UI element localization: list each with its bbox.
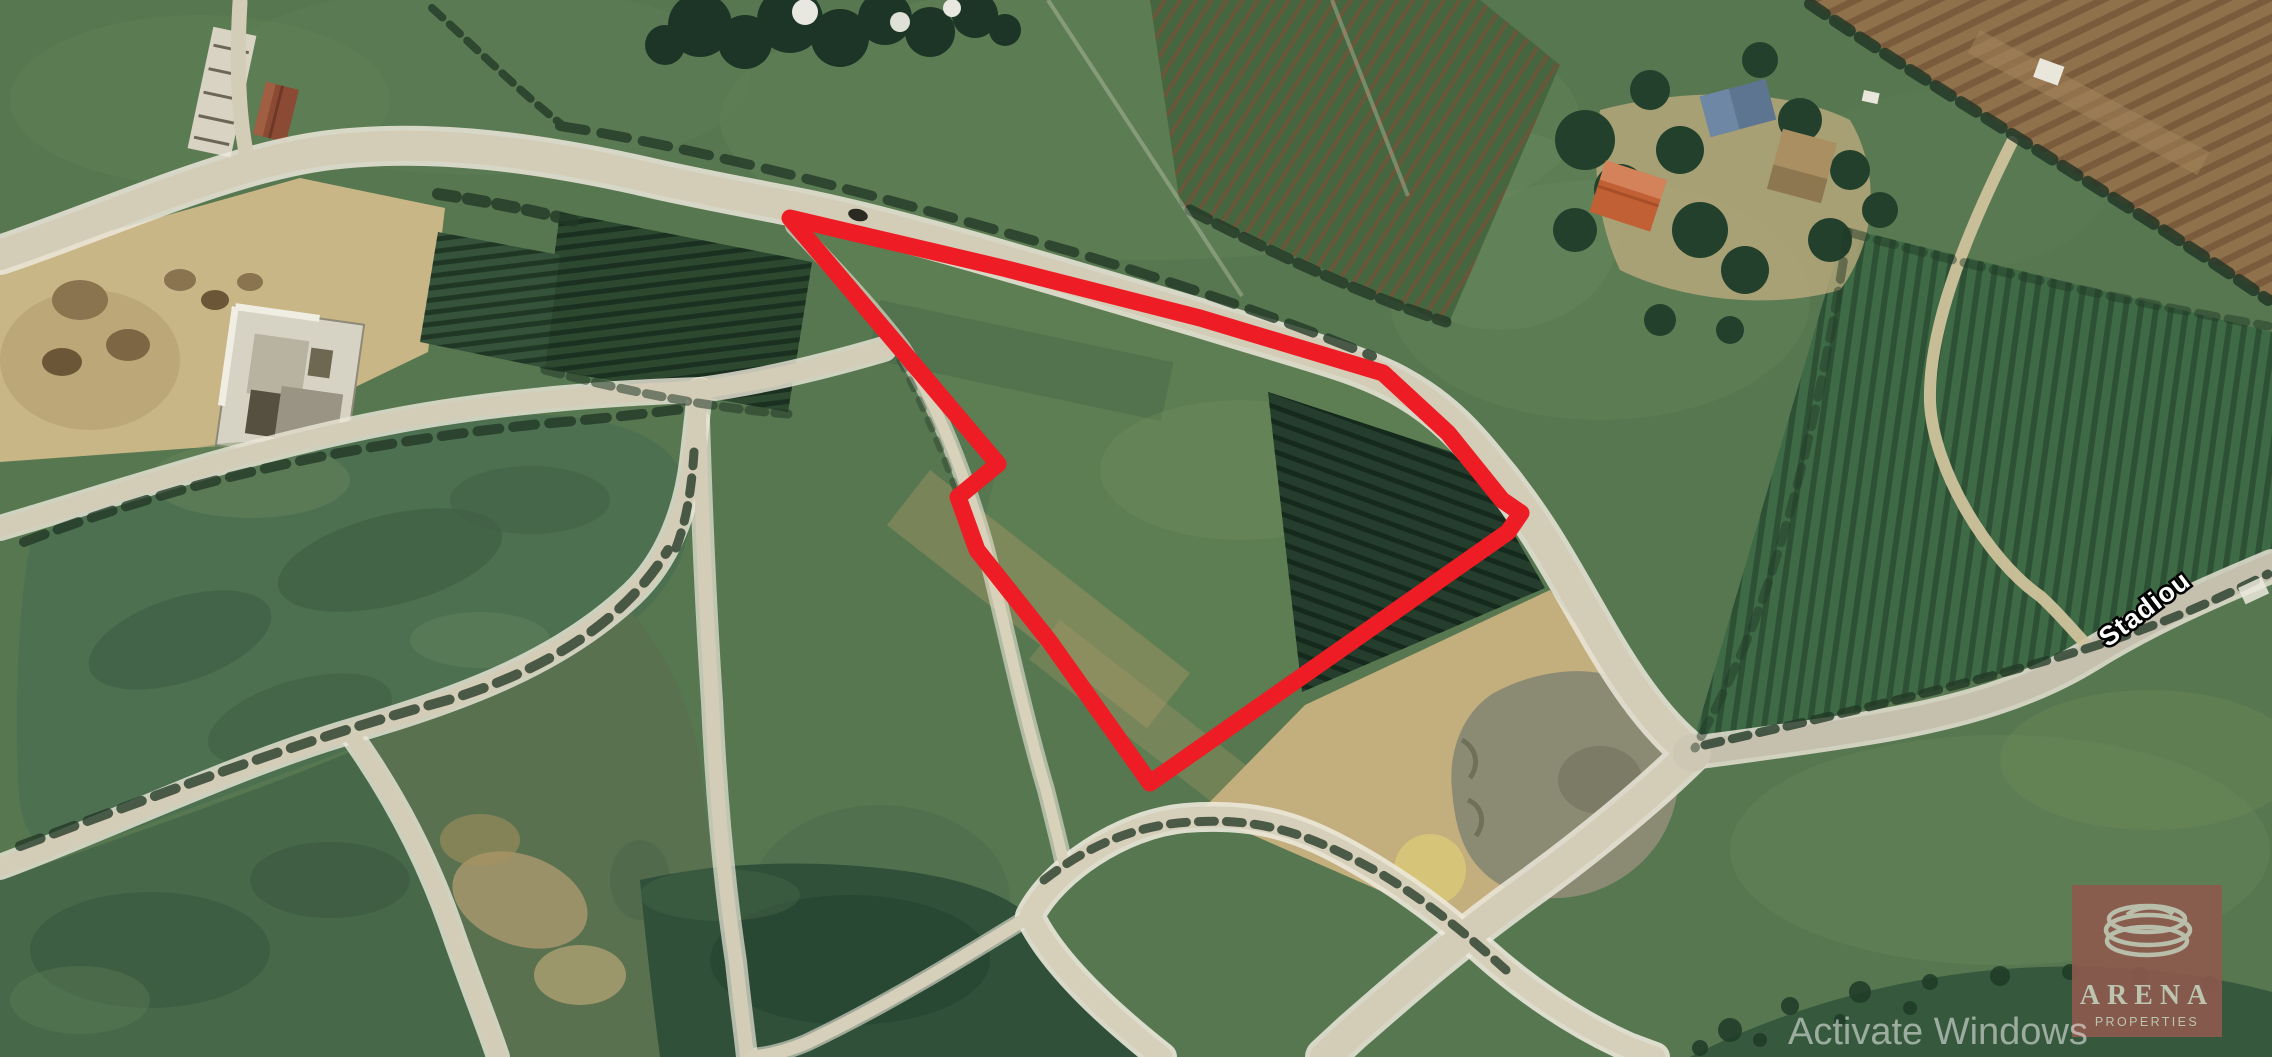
logo-title: ARENA [2080,980,2215,1011]
agency-logo: ARENA PROPERTIES [2072,885,2222,1037]
logo-subtitle: PROPERTIES [2095,1015,2199,1029]
activate-windows-watermark: Activate Windows [1788,1011,2088,1053]
satellite-map[interactable]: Stadiou ARENA PROPERTIES Activate Window… [0,0,2272,1057]
svg-text:Activate Windows: Activate Windows [1788,1011,2088,1053]
